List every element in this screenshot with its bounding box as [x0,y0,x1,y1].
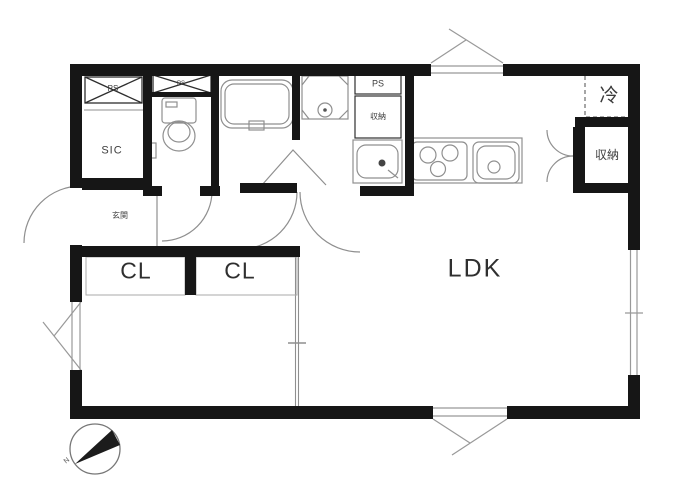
wall-fridge-storage-divider [575,117,640,127]
kitchen-counter-icon [408,138,522,183]
wall-sic-wc-divider [143,64,152,186]
wall-storage-bottom [573,183,640,193]
meter-box-small-label: PS [177,81,185,87]
window-right [625,250,643,375]
refrigerator-label: 冷 [599,87,618,106]
kitchen-storage-label: 収納 [595,149,619,161]
wall-right-upper [628,64,640,250]
wall-washroom-kitchen-divider [405,64,414,196]
washroom-storage-label: 収納 [370,113,386,121]
shoe-closet-label: SIC [101,146,122,157]
wc-door-arc [162,191,212,241]
wall-hall-seg-2 [200,186,220,196]
wall-hall-seg-1 [143,186,162,196]
wall-left-middle [70,245,82,302]
window-top [431,29,503,75]
wall-top-left [70,64,431,76]
wall-wc-bath-divider [211,64,219,186]
wall-below-sic [82,178,143,190]
window-left [43,302,82,370]
meter-box-left-label: PS [108,85,119,93]
window-bottom [433,406,507,455]
hall-door-arc [240,192,297,249]
wall-storage-left [573,127,585,183]
wall-bath-washroom-divider [292,64,300,140]
closet-right-label: CL [224,260,255,283]
wall-hall-seg-3 [240,183,297,193]
wall-left-lower [70,370,82,419]
wall-under-meter-box [152,92,212,97]
pipe-space-label: PS [372,80,384,89]
wall-closet-divider [185,246,196,295]
closet-left-label: CL [120,260,151,283]
wall-bottom-right [507,406,640,419]
entrance-label: 玄関 [112,212,128,220]
wall-hall-seg-4 [360,186,414,196]
washing-machine-pan-icon [302,76,348,119]
storage-double-door-arcs [547,130,573,182]
floor-plan: PS PS SIC 玄関 PS 収納 冷 収納 LDK CL CL N [0,0,681,497]
wall-bottom-left [70,406,433,419]
ldk-door-arc [300,192,360,252]
compass-icon [70,424,120,474]
wall-top-right [503,64,640,76]
entry-door-arc [24,186,81,243]
ldk-label: LDK [448,257,503,282]
washbasin-icon [353,140,402,183]
toilet-icon [150,98,196,158]
wall-right-lower [628,375,640,419]
bathtub-icon [221,80,293,130]
wall-left-upper [70,64,82,188]
bath-folding-door [262,150,326,185]
